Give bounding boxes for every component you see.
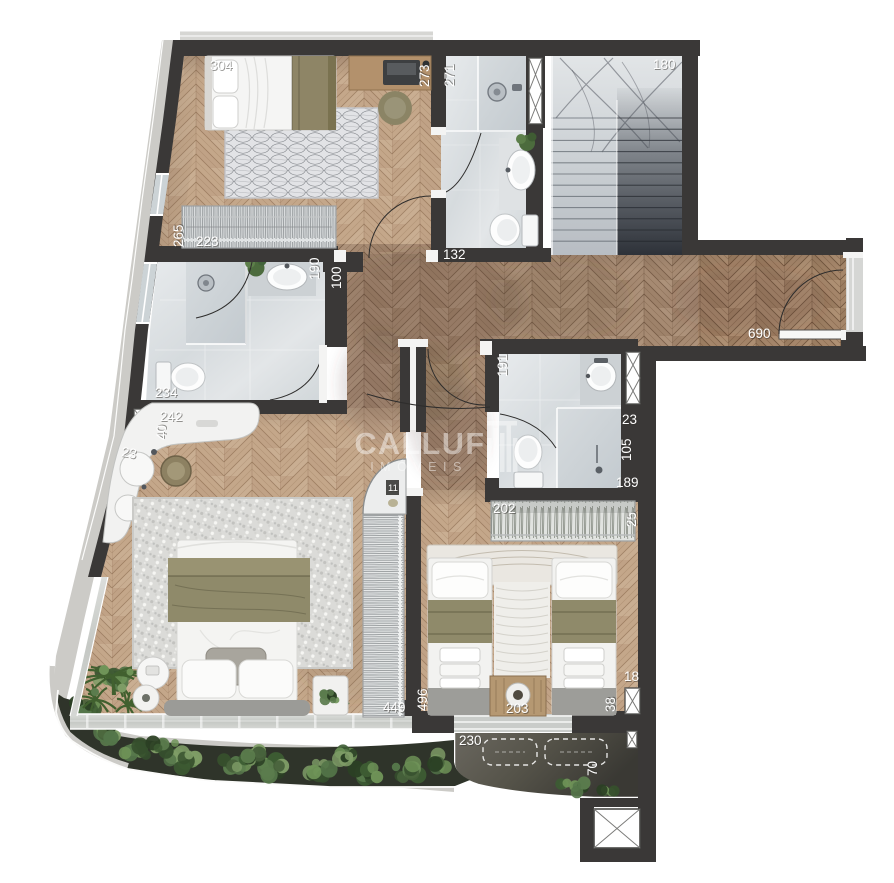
svg-text:234: 234 bbox=[155, 385, 178, 400]
svg-text:202: 202 bbox=[493, 501, 516, 516]
svg-text:223: 223 bbox=[196, 234, 219, 249]
svg-text:273: 273 bbox=[417, 64, 432, 87]
svg-text:132: 132 bbox=[443, 247, 466, 262]
svg-text:191: 191 bbox=[495, 354, 510, 377]
svg-text:11: 11 bbox=[388, 483, 398, 494]
svg-text:203: 203 bbox=[506, 701, 529, 716]
svg-text:265: 265 bbox=[171, 224, 186, 247]
svg-text:25: 25 bbox=[624, 512, 639, 527]
svg-text:18: 18 bbox=[624, 669, 639, 684]
svg-text:70: 70 bbox=[585, 761, 600, 776]
svg-text:23: 23 bbox=[622, 412, 637, 427]
svg-text:230: 230 bbox=[459, 733, 482, 748]
svg-text:23: 23 bbox=[120, 444, 137, 461]
svg-text:CALLUF: CALLUF bbox=[355, 427, 486, 461]
svg-text:496: 496 bbox=[415, 688, 430, 711]
svg-text:IMÓVEIS: IMÓVEIS bbox=[370, 459, 468, 474]
svg-text:38: 38 bbox=[603, 697, 618, 712]
svg-text:304: 304 bbox=[210, 58, 233, 73]
svg-text:242: 242 bbox=[160, 409, 183, 424]
svg-text:40: 40 bbox=[154, 425, 169, 440]
svg-text:271: 271 bbox=[442, 64, 457, 87]
svg-text:105: 105 bbox=[619, 438, 634, 461]
svg-text:189: 189 bbox=[616, 475, 639, 490]
svg-text:100: 100 bbox=[329, 266, 344, 289]
svg-text:180: 180 bbox=[653, 57, 676, 72]
svg-text:449: 449 bbox=[383, 700, 406, 715]
svg-text:190: 190 bbox=[307, 257, 322, 280]
svg-text:690: 690 bbox=[748, 326, 771, 341]
